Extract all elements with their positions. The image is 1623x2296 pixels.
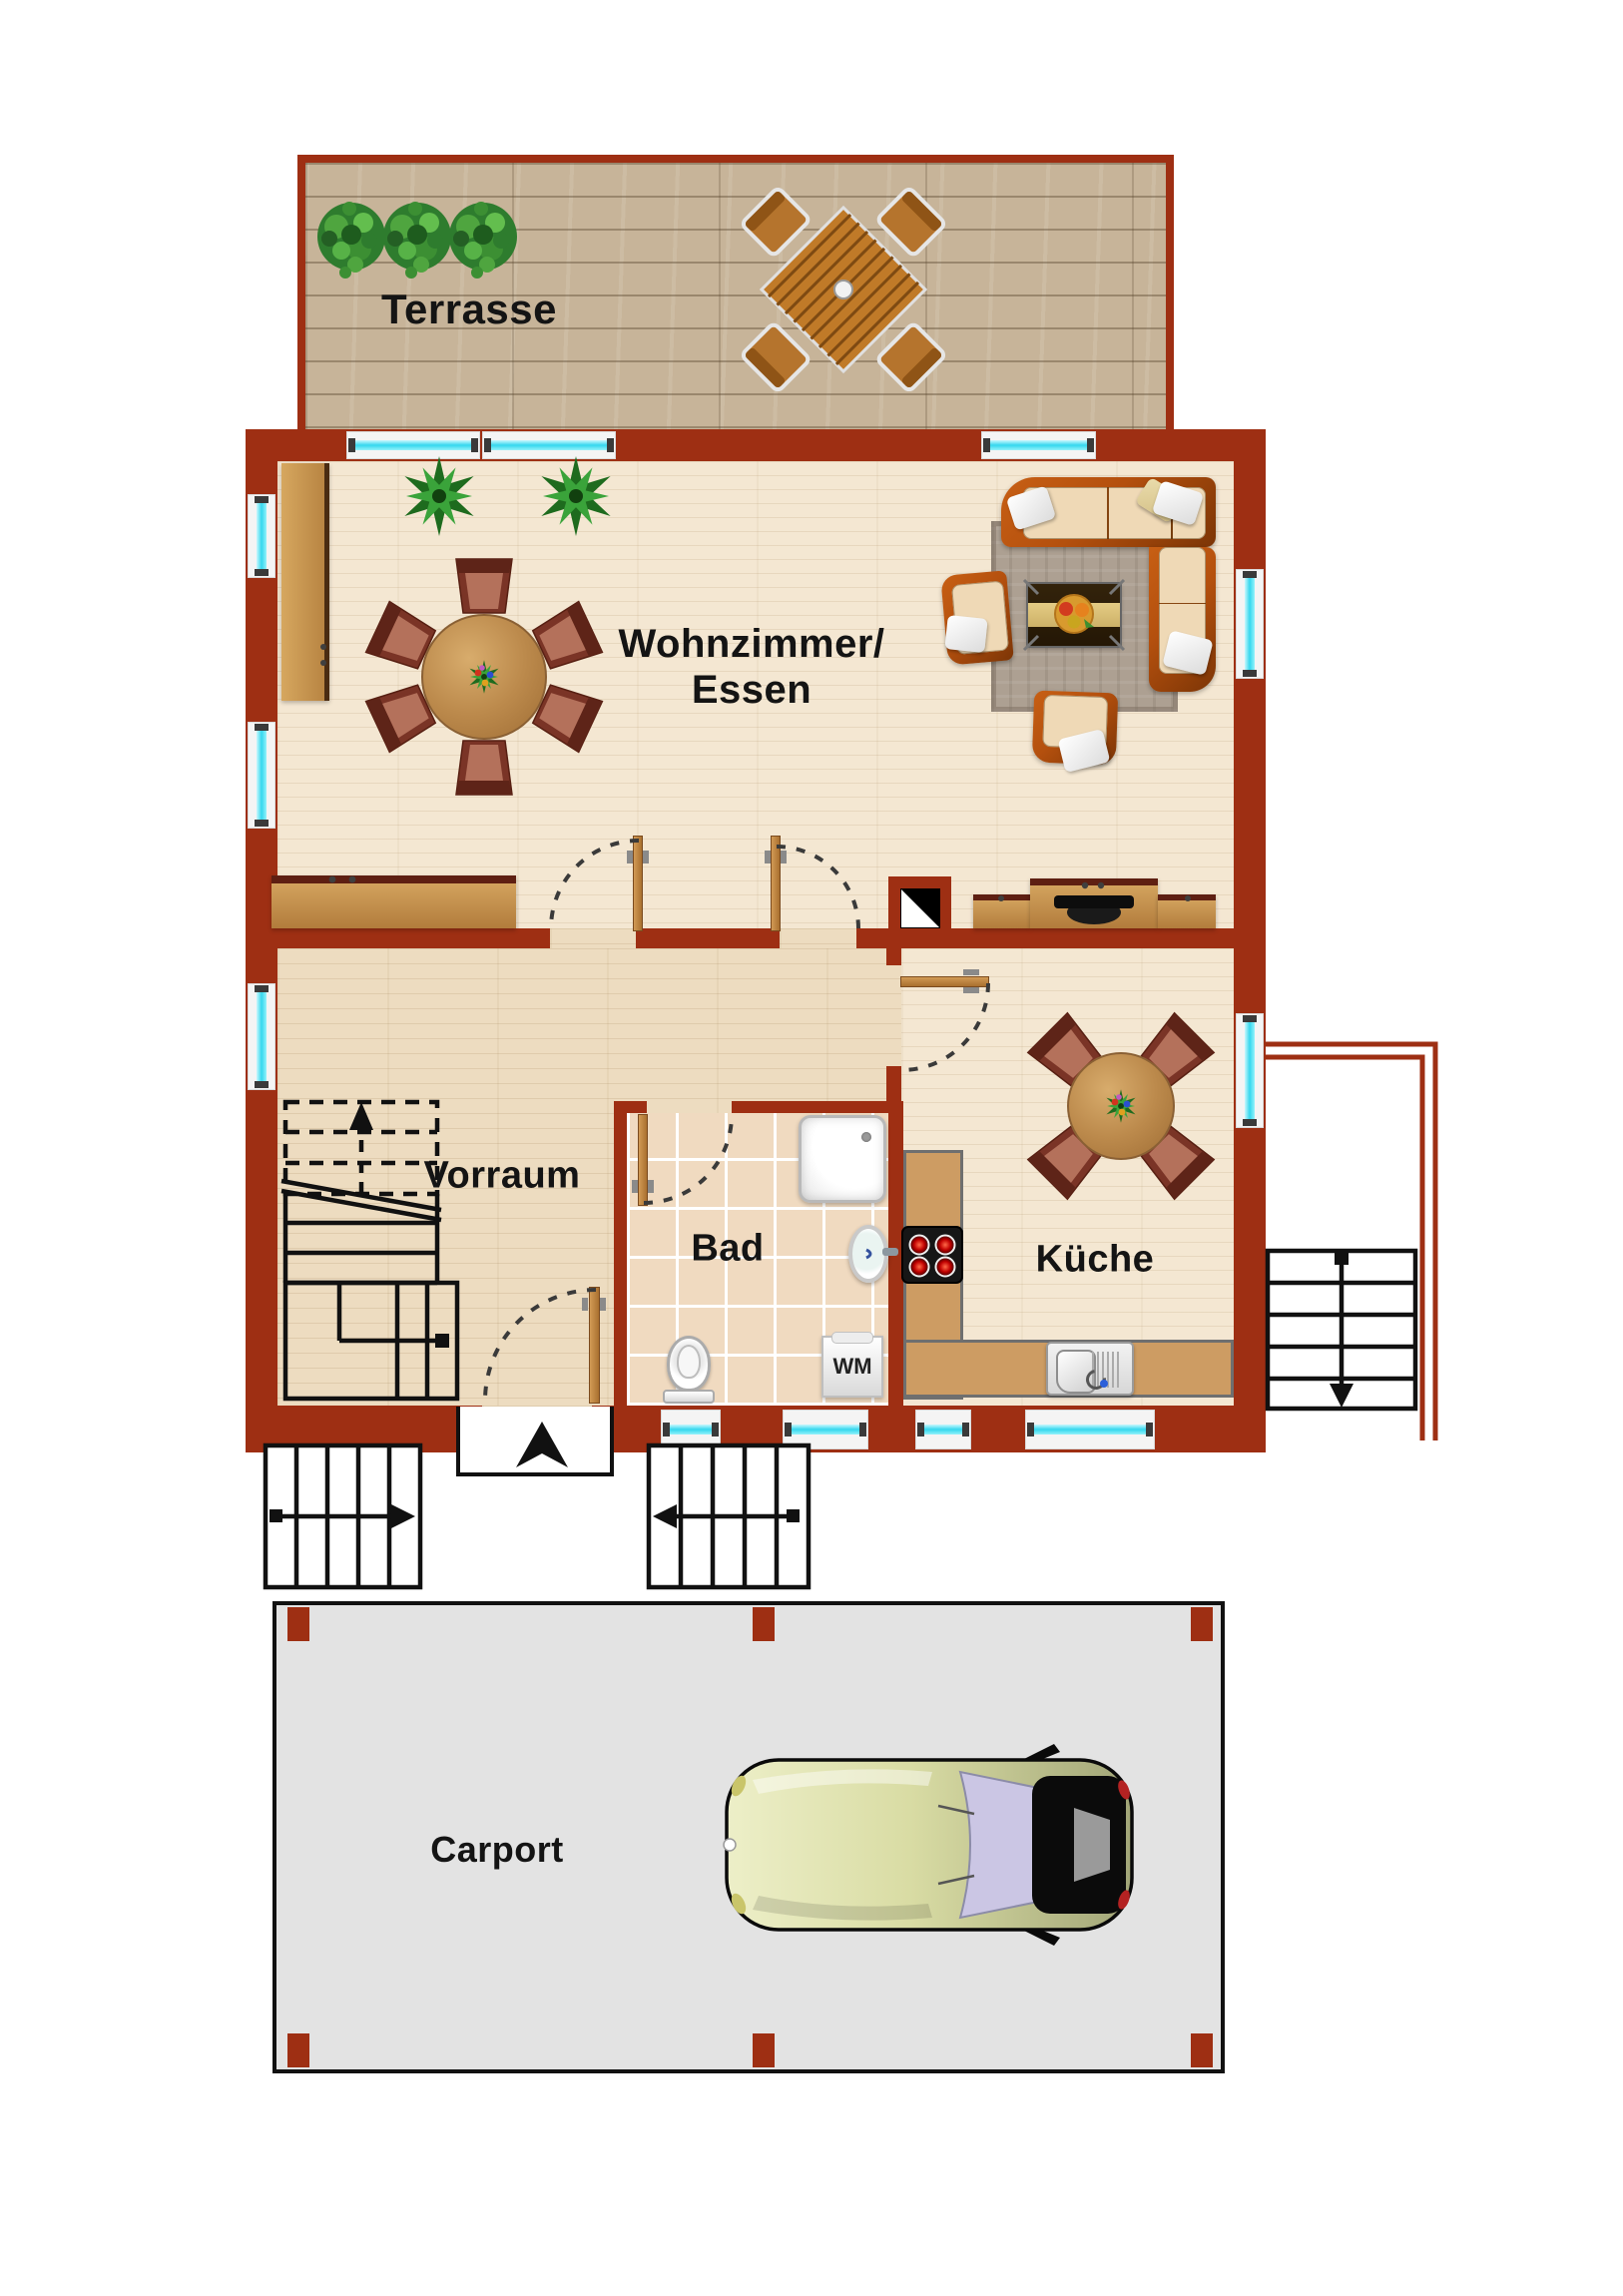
label-carport: Carport bbox=[430, 1829, 564, 1871]
carport-slab bbox=[272, 1601, 1225, 2073]
door-entrance bbox=[590, 1288, 599, 1403]
window-left-1 bbox=[248, 494, 275, 578]
wall-hall-kitchen-upper bbox=[886, 948, 901, 965]
washing-machine-label: WM bbox=[832, 1354, 871, 1380]
carport-post bbox=[1191, 1607, 1213, 1641]
doorway-living-left bbox=[550, 928, 636, 948]
carport-post bbox=[753, 2033, 775, 2067]
wall-bad-right bbox=[888, 1101, 903, 1406]
shower bbox=[799, 1115, 886, 1203]
label-wohnzimmer-line2: Essen bbox=[618, 667, 884, 713]
window-bottom-bad-1 bbox=[661, 1410, 721, 1449]
carport-post bbox=[1191, 2033, 1213, 2067]
tv-lowboard-left bbox=[973, 894, 1030, 928]
stairs-exterior-left bbox=[266, 1445, 420, 1587]
label-kueche: Küche bbox=[1036, 1239, 1155, 1282]
label-wohnzimmer: Wohnzimmer/ Essen bbox=[618, 621, 884, 713]
doorway-living-right bbox=[780, 928, 856, 948]
chimney-block bbox=[888, 876, 951, 948]
washbasin bbox=[848, 1225, 888, 1283]
carport-post bbox=[287, 2033, 309, 2067]
wall-bad-top-right bbox=[732, 1101, 903, 1113]
tv-lowboard-right bbox=[1158, 894, 1216, 928]
window-right-kitchen bbox=[1236, 1013, 1264, 1128]
kitchen-sink bbox=[1046, 1342, 1134, 1396]
toilet bbox=[667, 1336, 711, 1392]
sideboard-tall bbox=[281, 463, 329, 701]
carport-post bbox=[753, 1607, 775, 1641]
wall-bad-left bbox=[614, 1101, 627, 1406]
label-bad: Bad bbox=[691, 1228, 764, 1271]
window-right-living bbox=[1236, 569, 1264, 679]
washing-machine: WM bbox=[821, 1336, 883, 1398]
window-bottom-kitchen-1 bbox=[915, 1410, 971, 1449]
door-living-left bbox=[634, 837, 642, 930]
window-left-2 bbox=[248, 722, 275, 829]
toilet-tank bbox=[663, 1390, 715, 1404]
label-terrasse: Terrasse bbox=[381, 286, 557, 333]
lowboard-left bbox=[271, 875, 516, 928]
window-bottom-kitchen-2 bbox=[1025, 1410, 1155, 1449]
label-vorraum: Vorraum bbox=[424, 1155, 581, 1198]
stairs-exterior-rightside bbox=[1268, 1251, 1415, 1409]
tv-board bbox=[1030, 878, 1158, 928]
stove bbox=[903, 1228, 961, 1282]
sliding-door-pane-right bbox=[482, 431, 616, 459]
stairs-exterior-right bbox=[649, 1445, 809, 1587]
carport-post bbox=[287, 1607, 309, 1641]
railing-right bbox=[1266, 1044, 1435, 1440]
doorway-entrance bbox=[482, 1406, 592, 1445]
door-kitchen bbox=[901, 977, 988, 986]
door-bad bbox=[639, 1115, 647, 1205]
window-bottom-bad-2 bbox=[783, 1410, 868, 1449]
sliding-door-pane-left bbox=[346, 431, 480, 459]
armchair-pillow bbox=[944, 615, 987, 653]
door-living-right bbox=[772, 837, 780, 930]
coffee-table bbox=[1028, 584, 1120, 646]
window-left-3 bbox=[248, 983, 275, 1090]
label-wohnzimmer-line1: Wohnzimmer/ bbox=[618, 621, 884, 667]
window-top-right bbox=[981, 431, 1096, 459]
wall-bad-top-left bbox=[614, 1101, 647, 1113]
floorplan: WM bbox=[0, 0, 1623, 2296]
